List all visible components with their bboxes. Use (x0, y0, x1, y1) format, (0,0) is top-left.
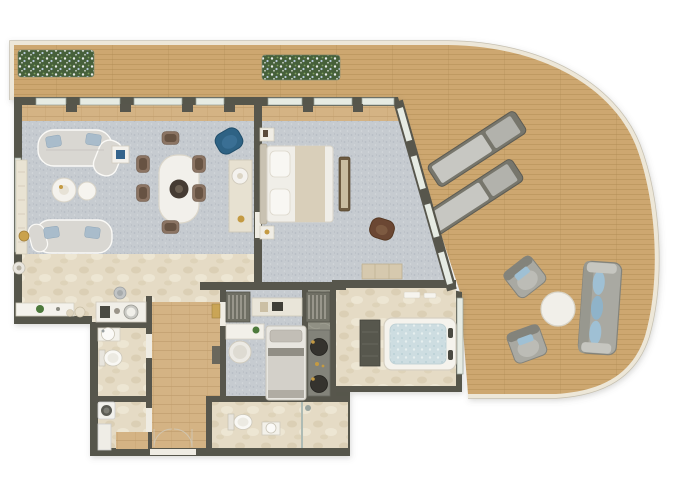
master-bedroom-wood-strip (262, 106, 404, 121)
floor-plan-svg (0, 0, 680, 486)
outdoor-sofa (578, 261, 622, 355)
towels (404, 292, 420, 298)
jar-large (75, 307, 85, 317)
wall-kitchen-wc (92, 322, 152, 328)
wall-pillar (224, 104, 235, 112)
shower-head (305, 405, 311, 411)
bed-pillow (270, 189, 290, 215)
toilet-2 (228, 414, 252, 430)
desk-decor (260, 302, 268, 312)
curved-sofa-bottom (27, 220, 112, 254)
wall-mid-horizontal (200, 282, 346, 290)
tub-jet (448, 328, 453, 338)
window-top-1 (36, 98, 66, 105)
door-second-bedroom (220, 302, 226, 326)
jacuzzi-bathtub (384, 318, 456, 370)
window-top-3 (134, 98, 182, 105)
headboard (260, 144, 267, 224)
wall-vanity-bath (330, 288, 336, 398)
plant-pot (36, 305, 44, 313)
island-counter (16, 303, 74, 316)
bed-runner (295, 146, 325, 222)
dining-chair (137, 156, 150, 173)
tub-water (390, 324, 446, 364)
window-bedroom-3 (362, 98, 394, 105)
wall-hall-bed2-a (220, 290, 226, 302)
double-bed (260, 144, 333, 224)
nightstand-lamp (265, 230, 270, 235)
wall-bath2-left (206, 396, 212, 452)
flower-planter-right (262, 55, 340, 80)
wall-living-bedroom-lower (254, 238, 262, 286)
small-appliance (114, 308, 120, 314)
sofa-pillow (43, 226, 59, 239)
side-table-blue (112, 146, 129, 163)
wc-basin (102, 328, 115, 341)
coffee-machine (100, 306, 110, 318)
laundry-counter (98, 424, 111, 450)
wall-pillar (182, 104, 193, 112)
coffee-table-small (78, 182, 96, 200)
nightstand-decor (263, 130, 268, 137)
sofa-armrest (586, 262, 617, 274)
table-centerpiece-inner (175, 185, 183, 193)
ensuite-vanity (308, 330, 330, 396)
sofa-pillow (45, 135, 62, 148)
wall-pillar (120, 104, 131, 112)
wall-bedroom-bath (332, 280, 456, 288)
wall-bath-bottom (336, 386, 456, 392)
sofa-pillow (85, 133, 101, 146)
vanity-decor (322, 365, 325, 368)
dining-chair (162, 132, 179, 145)
floor-plan-stage (0, 0, 680, 486)
window-bedroom-1 (268, 98, 302, 105)
blue-decor (116, 150, 125, 159)
toilet-tank (228, 414, 234, 430)
wall-hall-wc-b (146, 358, 152, 408)
flower-planter-left (18, 50, 94, 77)
dining-chair (162, 221, 179, 234)
outdoor-round-table (541, 292, 575, 326)
bed-runner (268, 390, 304, 398)
door-laundry (146, 408, 152, 432)
wall-pillar (303, 104, 313, 112)
dining-chair (193, 185, 206, 202)
faucet-gold (311, 340, 315, 344)
towels (424, 293, 436, 298)
door-guest-wc (146, 334, 152, 358)
window-bedroom-2 (314, 98, 352, 105)
bed-throw (268, 348, 304, 356)
dining-chair (137, 185, 150, 202)
floor-lamp (19, 231, 29, 241)
faucet (102, 330, 105, 333)
gold-decor (238, 216, 245, 223)
wall-hall-wc-a (146, 296, 152, 334)
sofa-armrest (581, 342, 612, 354)
wood-mat (116, 432, 148, 449)
window-top-2 (80, 98, 120, 105)
counter-decor (56, 307, 60, 311)
bed-pillow (270, 330, 302, 342)
wc-toilet (99, 350, 122, 366)
window-bathroom (457, 298, 463, 374)
dining-chair (193, 156, 206, 173)
vanity-decor (315, 362, 319, 366)
laptop (272, 302, 283, 311)
washbasin-2 (266, 423, 276, 433)
wall-pillar (66, 104, 77, 112)
coffee-table-decor (59, 185, 63, 189)
wall-art (212, 304, 220, 318)
living-wood-strip (22, 105, 254, 121)
bed-pillow (270, 151, 290, 177)
wall-hall-bed2-b (220, 326, 226, 396)
dresser (362, 264, 402, 279)
window-top-4 (196, 98, 224, 105)
jar-small (67, 310, 74, 317)
wall-wc-laundry (92, 396, 146, 402)
hall-cabinet (212, 346, 220, 364)
tub-jet (448, 350, 453, 360)
wall-pillar (353, 104, 363, 112)
sofa-pillow (84, 226, 100, 239)
console-with-lamp (229, 160, 252, 232)
shelf-plant (253, 327, 260, 334)
faucet-gold (311, 377, 315, 381)
single-bed (266, 326, 306, 400)
bath-storage-column (360, 320, 380, 366)
